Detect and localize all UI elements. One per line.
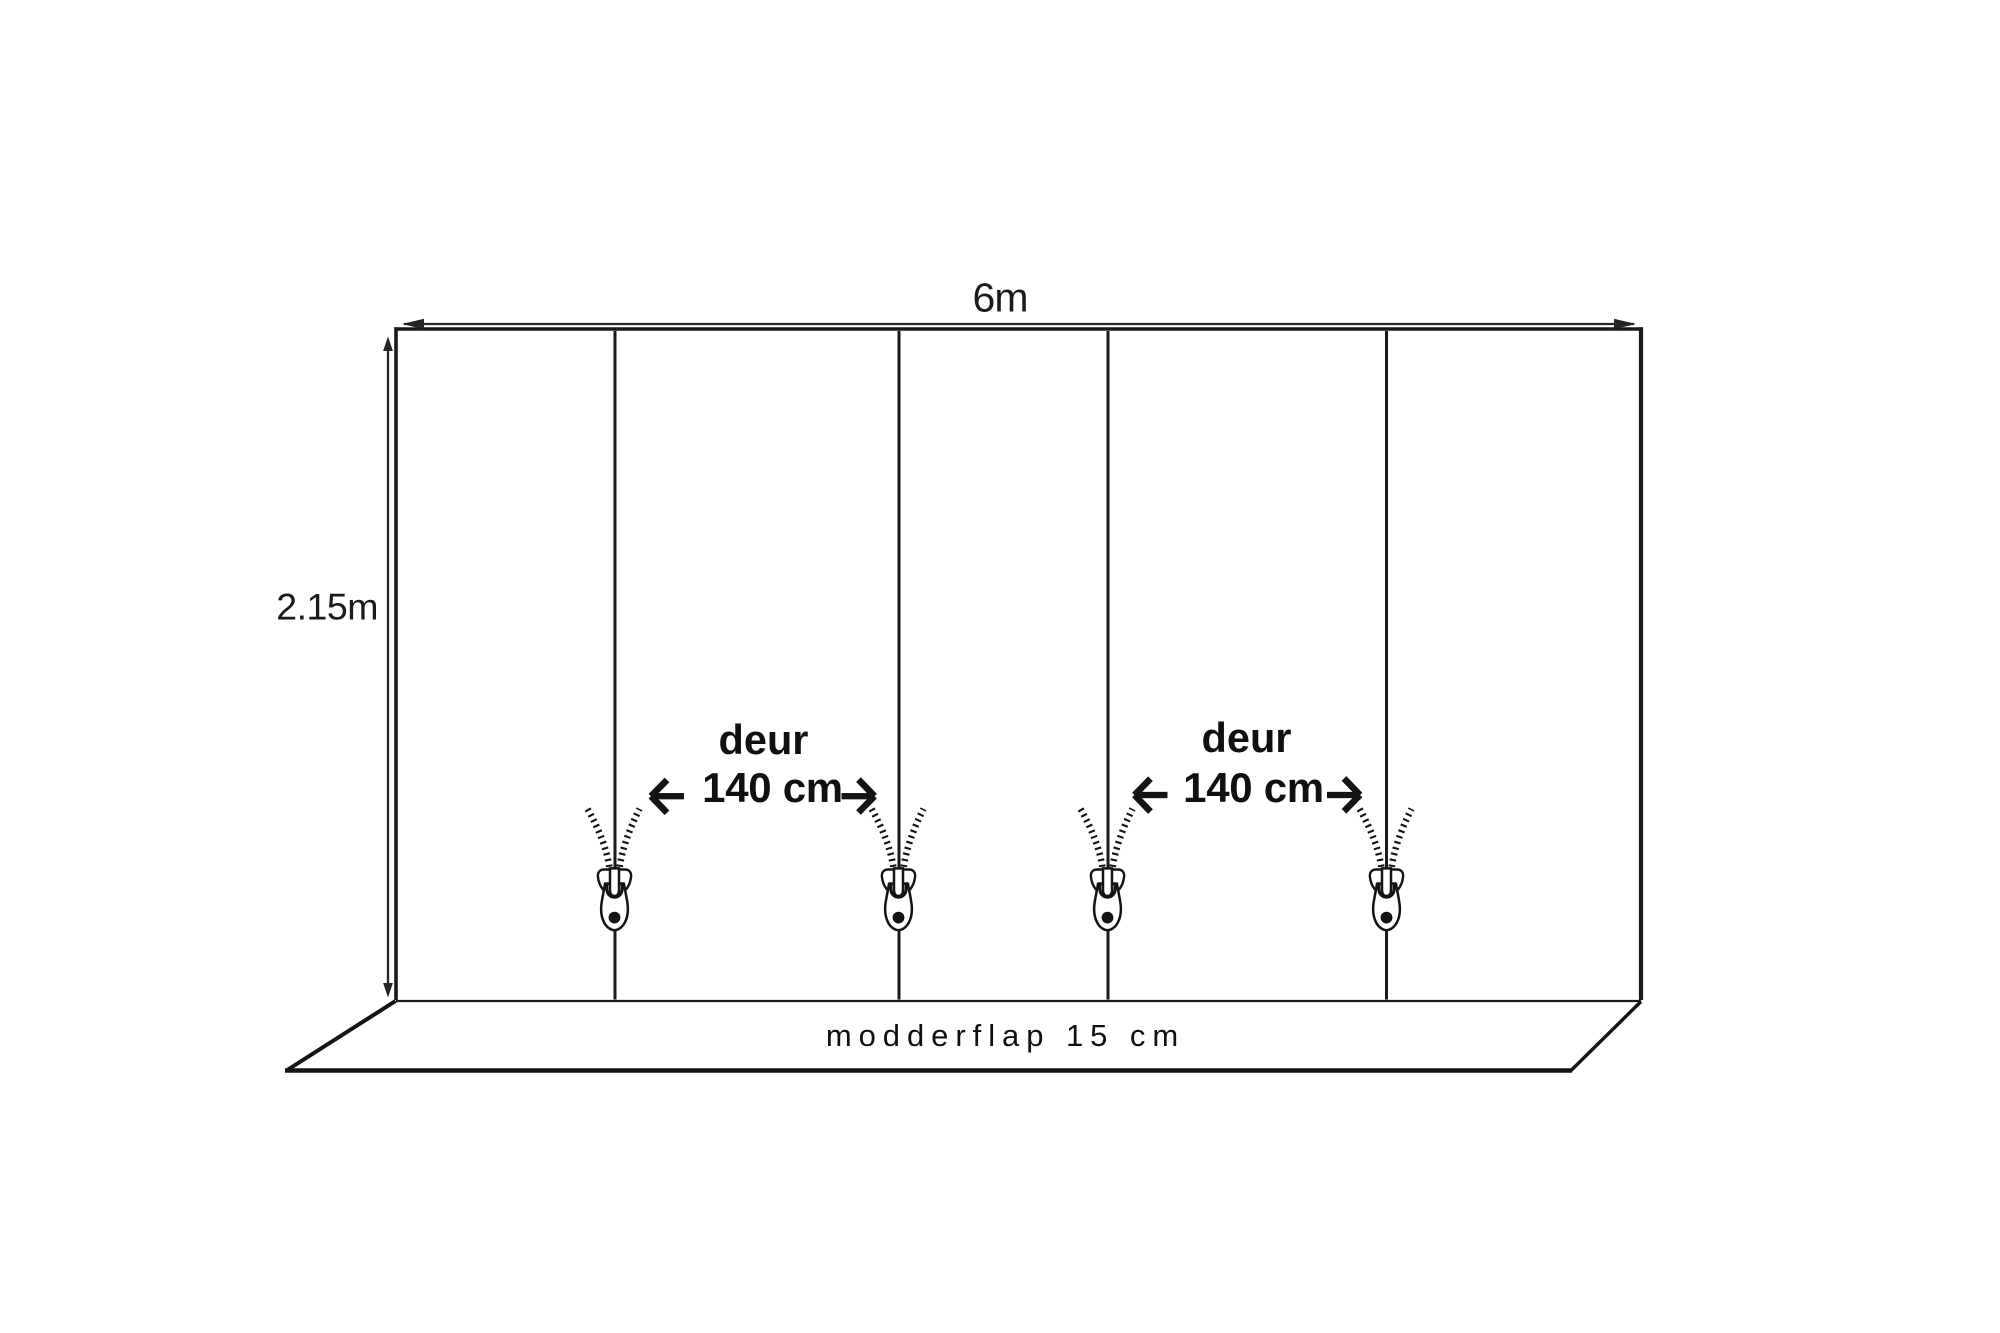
svg-text:2.15m: 2.15m [276,586,378,628]
svg-text:140 cm: 140 cm [1183,764,1324,811]
svg-text:deur: deur [1202,714,1292,761]
svg-text:6m: 6m [973,275,1028,321]
svg-text:140 cm: 140 cm [702,764,843,811]
svg-text:modderflap 15 cm: modderflap 15 cm [826,1018,1185,1053]
svg-text:deur: deur [719,716,809,763]
